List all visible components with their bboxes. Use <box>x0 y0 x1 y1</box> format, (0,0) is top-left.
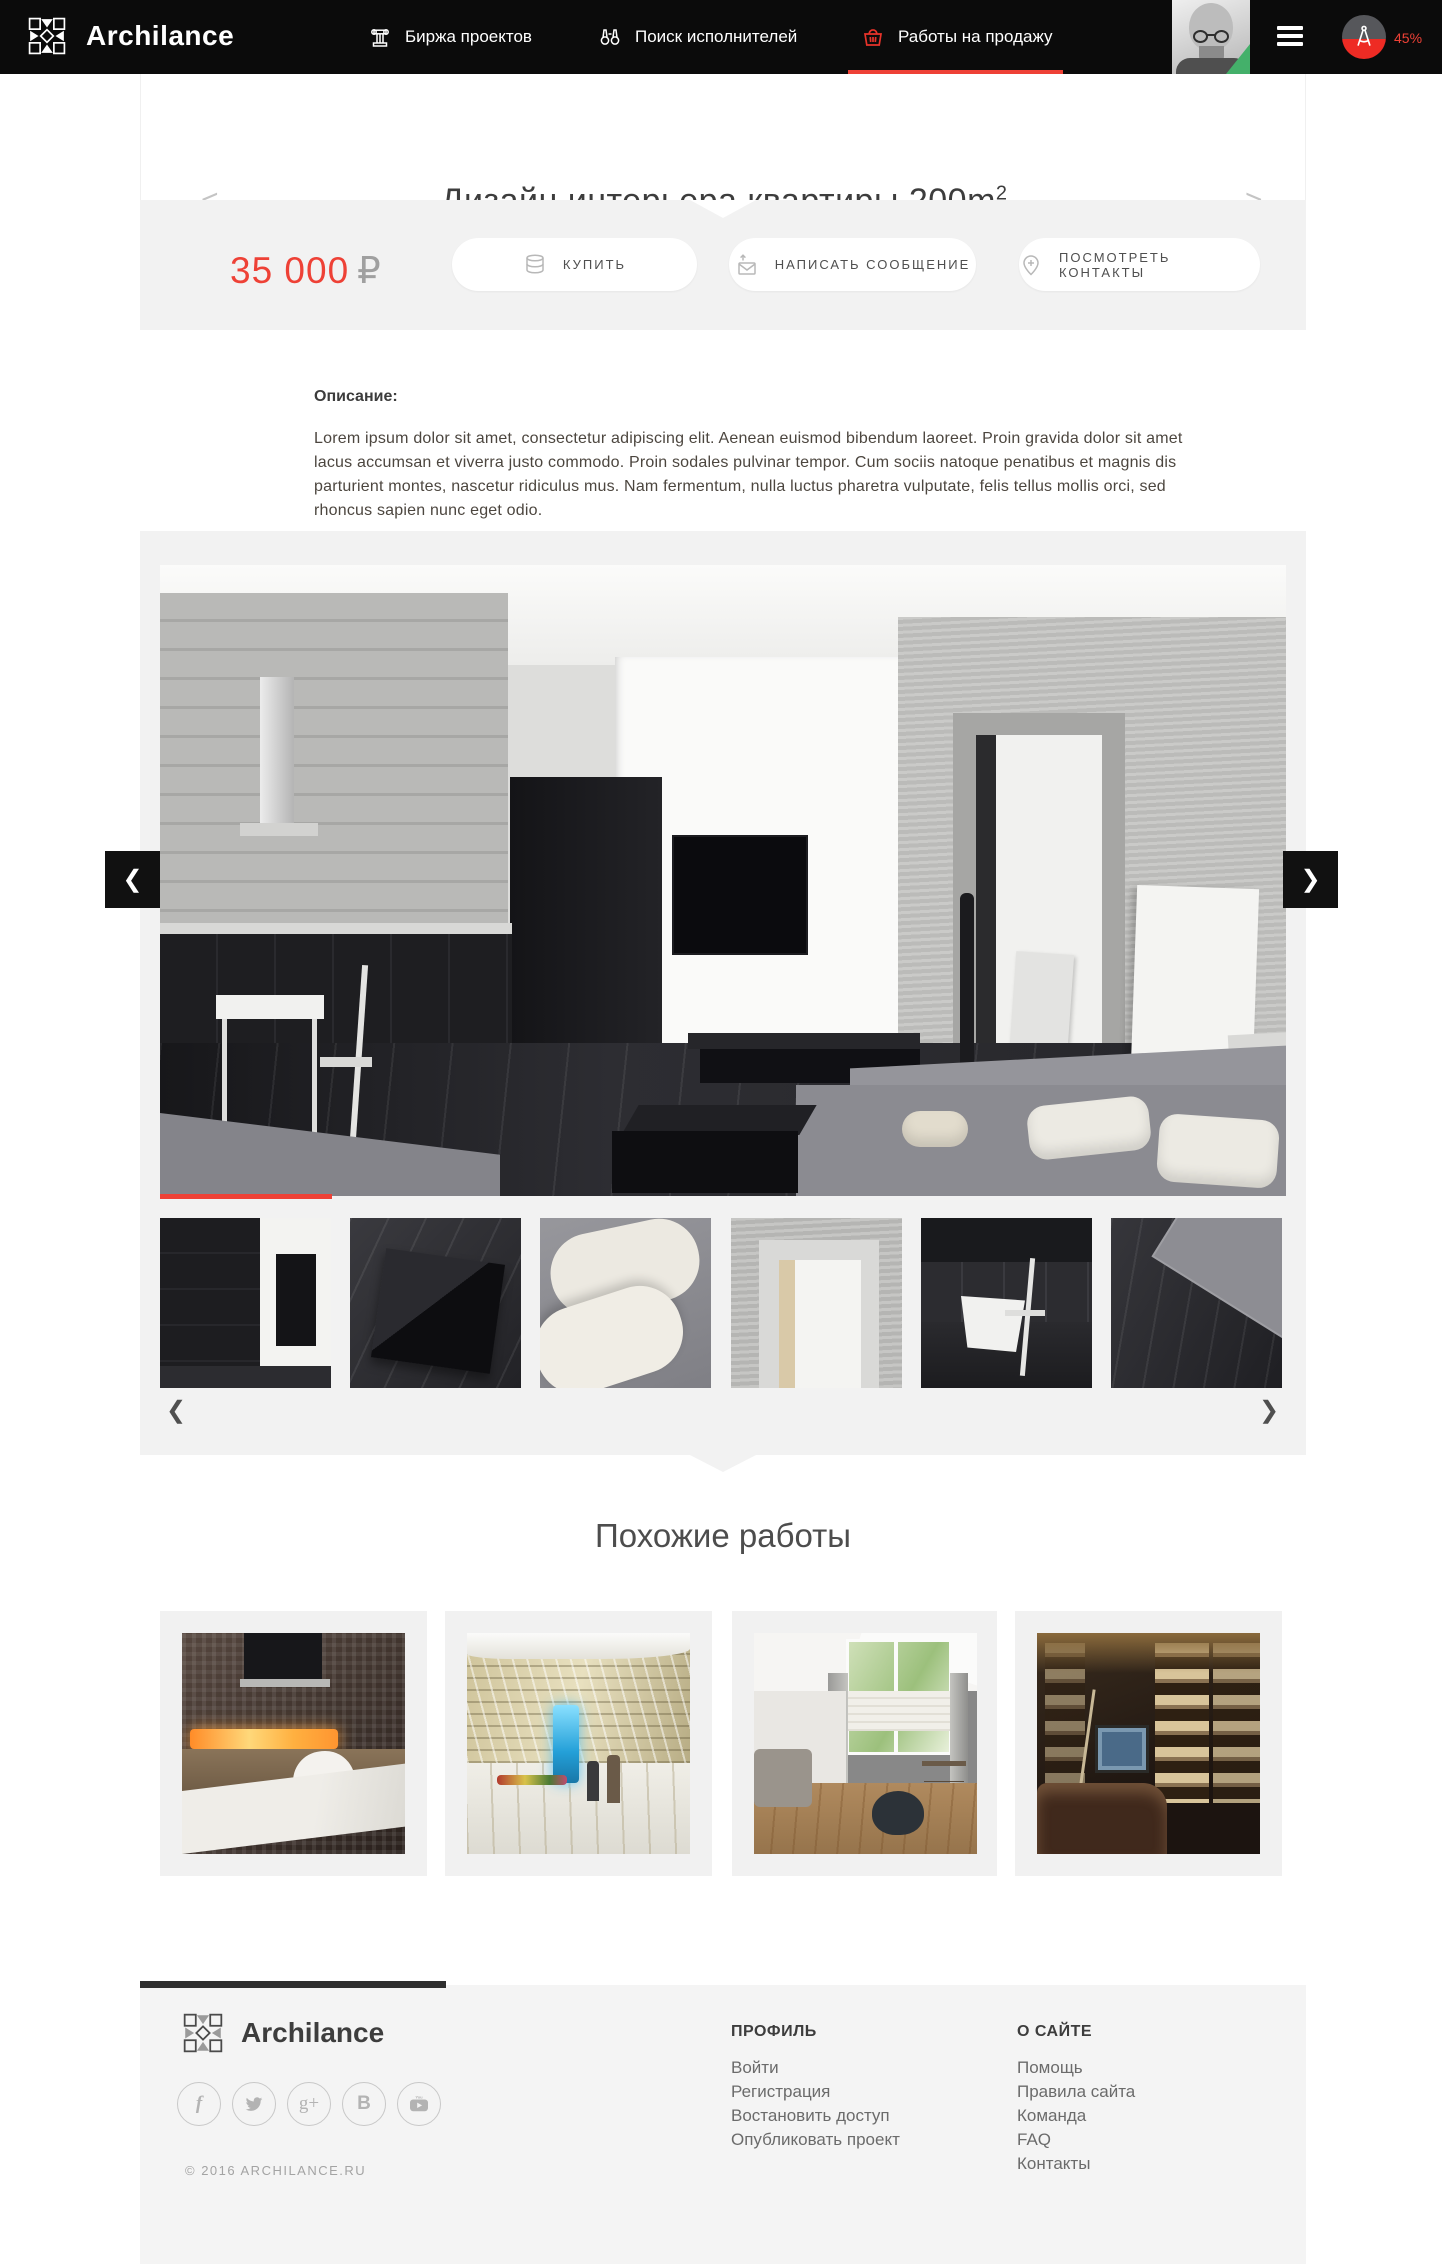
vk-icon[interactable]: B <box>342 2082 386 2126</box>
thumbnail-1[interactable] <box>160 1218 331 1388</box>
footer-link-faq[interactable]: FAQ <box>1017 2130 1051 2150</box>
footer-link-team[interactable]: Команда <box>1017 2106 1086 2126</box>
footer-accent-line <box>140 1981 446 1988</box>
archilance-logo-icon <box>28 17 66 55</box>
twitter-icon[interactable] <box>232 2082 276 2126</box>
photo-progress-indicator <box>160 1194 332 1199</box>
profile-progress-value: 45% <box>1394 30 1422 46</box>
similar-work-image <box>467 1633 690 1854</box>
nav-label: Работы на продажу <box>898 27 1053 47</box>
description-section: Описание: Lorem ipsum dolor sit amet, co… <box>140 330 1306 531</box>
nav-label: Биржа проектов <box>405 27 532 47</box>
profile-progress-badge[interactable] <box>1342 15 1386 59</box>
buy-button[interactable]: КУПИТЬ <box>452 238 697 291</box>
brand-name: Archilance <box>86 20 234 52</box>
photo-coffee-table <box>612 1131 798 1193</box>
footer-link-help[interactable]: Помощь <box>1017 2058 1083 2078</box>
gallery-section: ❮ ❯ ❮ ❯ <box>140 531 1306 1455</box>
thumbnails-next-button[interactable]: ❯ <box>1259 1399 1279 1423</box>
price: 35 000₽ <box>230 249 382 292</box>
footer-link-restore-access[interactable]: Востановить доступ <box>731 2106 890 2126</box>
nav-label: Поиск исполнителей <box>635 27 797 47</box>
archilance-logo-icon <box>183 2013 223 2053</box>
description-heading: Описание: <box>314 388 398 406</box>
drafting-compass-icon <box>1351 24 1377 50</box>
send-message-button[interactable]: НАПИСАТЬ СООБЩЕНИЕ <box>729 238 976 291</box>
chevron-left-icon: ❮ <box>122 865 142 894</box>
similar-work-image <box>754 1633 977 1854</box>
view-contacts-label: ПОСМОТРЕТЬ КОНТАКТЫ <box>1059 250 1260 280</box>
coins-icon <box>523 253 547 277</box>
similar-works-section: Похожие работы <box>140 1455 1306 1985</box>
pin-plus-icon <box>1019 253 1043 277</box>
similar-work-card[interactable] <box>445 1611 712 1876</box>
description-text: Lorem ipsum dolor sit amet, consectetur … <box>314 427 1194 523</box>
site-footer: Archilance f g+ B You © 2016 ARCHILANCE.… <box>140 1985 1306 2264</box>
nav-item-projects-exchange[interactable]: Биржа проектов <box>368 0 532 74</box>
chevron-right-icon: ❯ <box>1300 865 1320 894</box>
thumbnails-prev-button[interactable]: ❮ <box>166 1399 186 1423</box>
section-notch <box>690 1455 756 1472</box>
similar-work-card[interactable] <box>160 1611 427 1876</box>
footer-column-heading-about: О САЙТЕ <box>1017 2023 1092 2041</box>
buy-button-label: КУПИТЬ <box>563 257 626 272</box>
user-avatar[interactable] <box>1172 0 1250 74</box>
avatar-glasses <box>1193 30 1208 43</box>
bank-column-icon <box>368 25 392 49</box>
youtube-icon[interactable]: You <box>397 2082 441 2126</box>
thumbnail-4[interactable] <box>731 1218 902 1388</box>
footer-brand[interactable]: Archilance <box>183 2013 384 2053</box>
brand[interactable]: Archilance <box>28 17 234 55</box>
purchase-bar: 35 000₽ КУПИТЬ НАПИСАТЬ СООБЩЕНИЕ <box>140 200 1306 330</box>
send-message-label: НАПИСАТЬ СООБЩЕНИЕ <box>775 257 971 272</box>
thumbnail-2[interactable] <box>350 1218 521 1388</box>
footer-link-register[interactable]: Регистрация <box>731 2082 830 2102</box>
facebook-icon[interactable]: f <box>177 2082 221 2126</box>
currency-ruble: ₽ <box>357 250 382 291</box>
similar-work-card[interactable] <box>1015 1611 1282 1876</box>
thumbnail-3[interactable] <box>540 1218 711 1388</box>
hamburger-icon[interactable] <box>1277 26 1303 50</box>
title-bar: < предыдущий Дизайн интерьера квартиры 2… <box>140 74 1306 200</box>
site-header: Archilance Биржа проектов Поиск исполнит… <box>0 0 1442 74</box>
copyright: © 2016 ARCHILANCE.RU <box>185 2163 366 2178</box>
nav-item-find-performers[interactable]: Поиск исполнителей <box>598 0 797 74</box>
similar-work-card[interactable] <box>732 1611 997 1876</box>
footer-link-login[interactable]: Войти <box>731 2058 779 2078</box>
view-contacts-button[interactable]: ПОСМОТРЕТЬ КОНТАКТЫ <box>1019 238 1260 291</box>
social-links: f g+ B You <box>177 2082 441 2126</box>
section-notch <box>690 200 756 218</box>
footer-link-publish-project[interactable]: Опубликовать проект <box>731 2130 900 2150</box>
nav-item-works-for-sale[interactable]: Работы на продажу <box>861 0 1053 74</box>
google-plus-icon[interactable]: g+ <box>287 2082 331 2126</box>
envelope-send-icon <box>735 253 759 277</box>
basket-icon <box>861 25 885 49</box>
photo-tv <box>672 835 808 955</box>
binoculars-icon <box>598 25 622 49</box>
thumbnail-6[interactable] <box>1111 1218 1282 1388</box>
footer-link-rules[interactable]: Правила сайта <box>1017 2082 1135 2102</box>
svg-text:You: You <box>415 2095 423 2099</box>
similar-work-image <box>1037 1633 1260 1854</box>
gallery-prev-button[interactable]: ❮ <box>105 851 160 908</box>
footer-link-contacts[interactable]: Контакты <box>1017 2154 1090 2174</box>
main-photo[interactable] <box>160 565 1286 1196</box>
similar-work-image <box>182 1633 405 1854</box>
gallery-next-button[interactable]: ❯ <box>1283 851 1338 908</box>
similar-works-heading: Похожие работы <box>140 1517 1306 1555</box>
thumbnail-5[interactable] <box>921 1218 1092 1388</box>
footer-brand-name: Archilance <box>241 2017 384 2049</box>
footer-column-heading-profile: ПРОФИЛЬ <box>731 2023 817 2041</box>
